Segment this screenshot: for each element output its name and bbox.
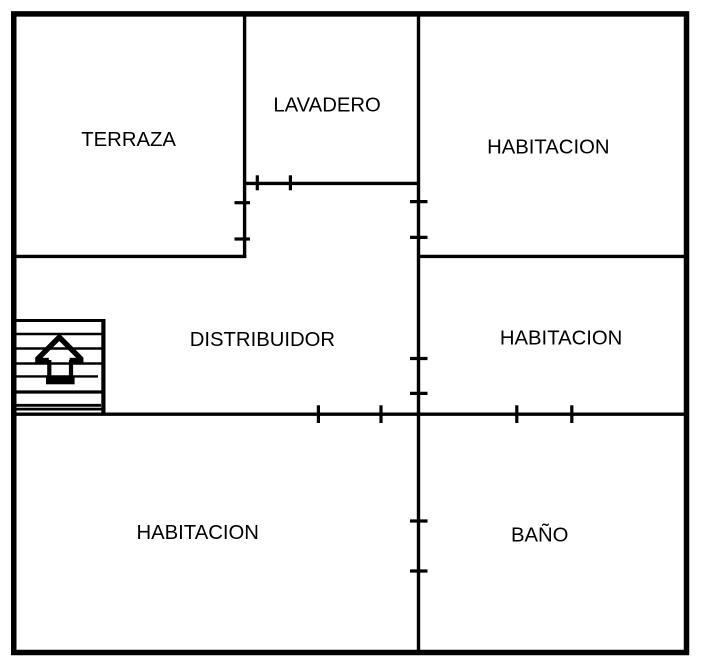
svg-text:DISTRIBUIDOR: DISTRIBUIDOR (190, 329, 335, 351)
svg-text:HABITACION: HABITACION (136, 522, 258, 544)
svg-text:TERRAZA: TERRAZA (81, 129, 176, 151)
svg-text:HABITACION: HABITACION (487, 136, 609, 158)
svg-text:LAVADERO: LAVADERO (273, 94, 380, 116)
svg-text:HABITACION: HABITACION (500, 327, 622, 349)
svg-text:BAÑO: BAÑO (511, 522, 568, 546)
